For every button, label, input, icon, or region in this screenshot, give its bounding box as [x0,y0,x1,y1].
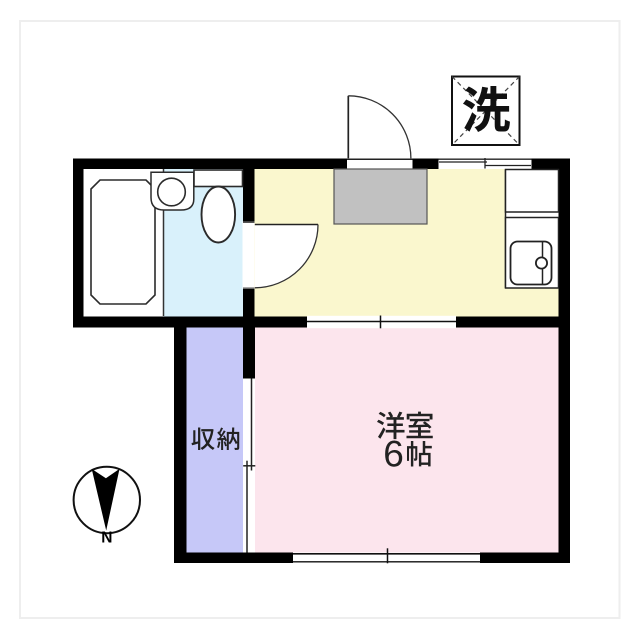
svg-text:6: 6 [383,434,404,475]
svg-text:N: N [101,530,112,547]
